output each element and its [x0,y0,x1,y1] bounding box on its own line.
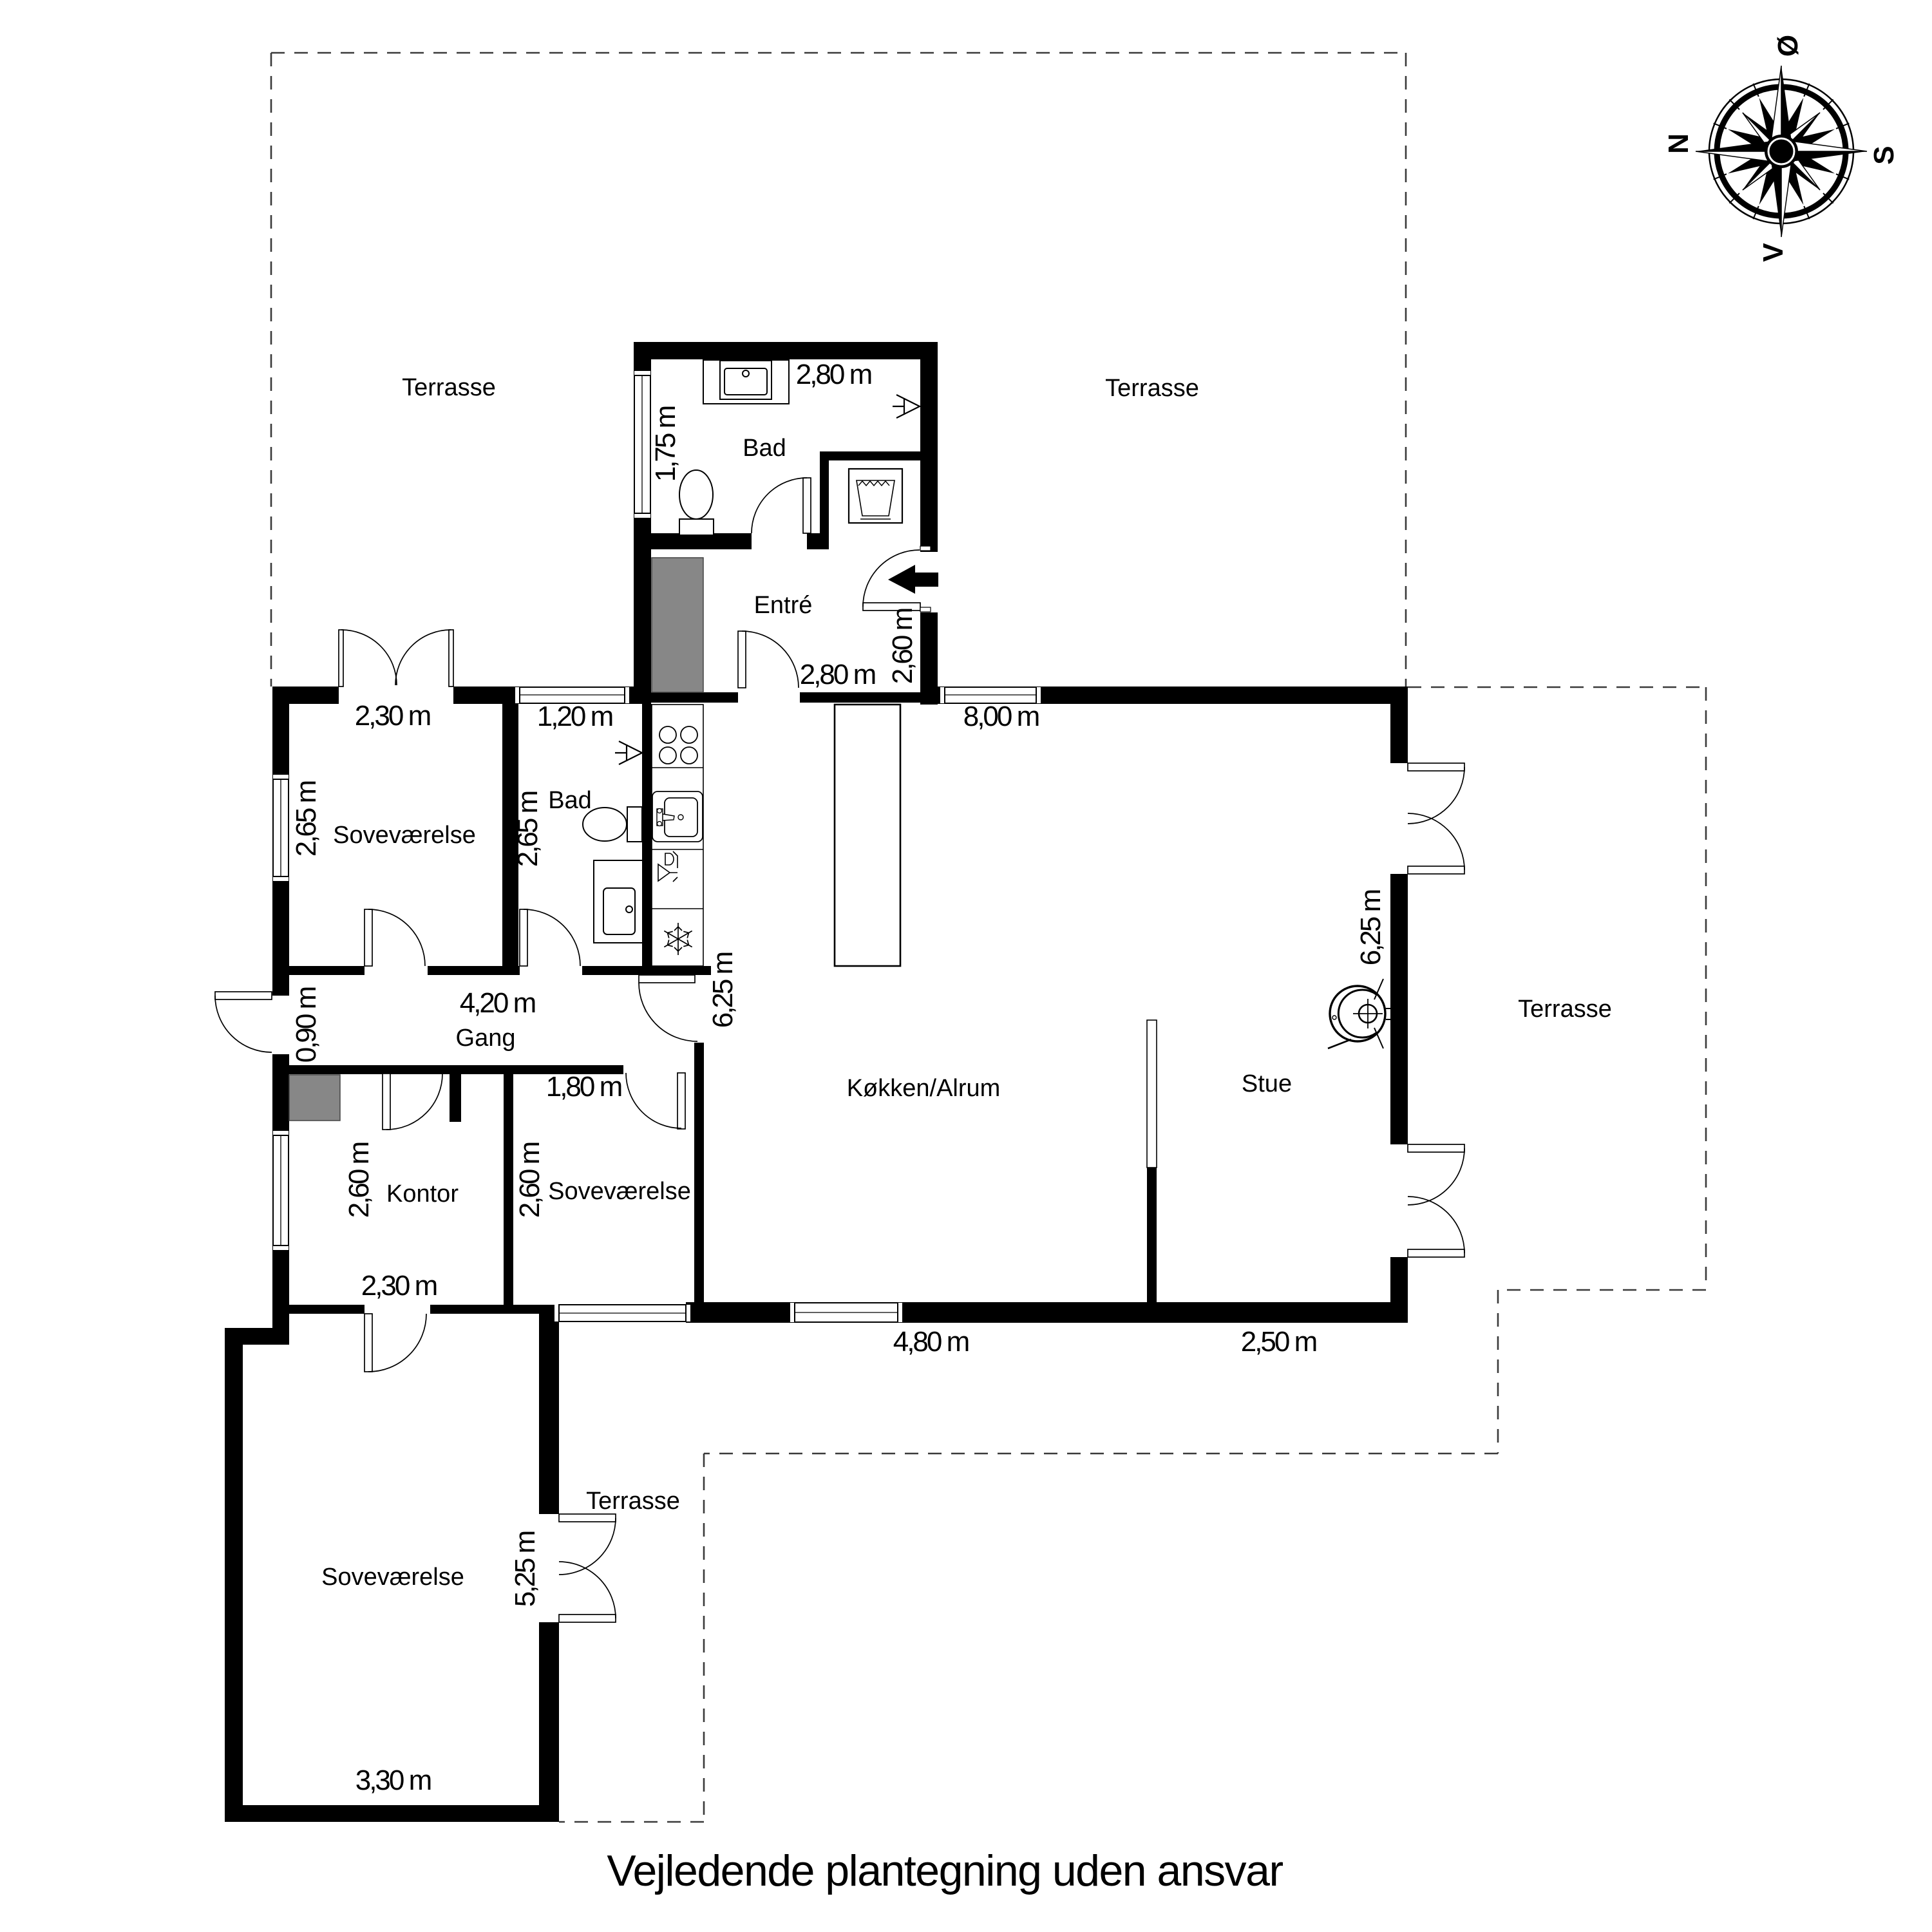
svg-text:Bad: Bad [548,787,592,814]
svg-text:N: N [1663,133,1694,154]
svg-text:S: S [1868,146,1900,164]
svg-text:1,75 m: 1,75 m [650,406,681,482]
svg-text:V: V [1757,243,1789,262]
svg-text:Bad: Bad [743,435,786,462]
svg-text:2,50 m: 2,50 m [1241,1326,1316,1358]
svg-text:6,25 m: 6,25 m [707,952,739,1028]
svg-text:Ø: Ø [1772,35,1804,57]
svg-text:Soveværelse: Soveværelse [333,822,476,849]
svg-text:Køkken/Alrum: Køkken/Alrum [847,1075,1001,1102]
svg-text:0,90 m: 0,90 m [290,987,322,1063]
svg-text:Soveværelse: Soveværelse [321,1564,464,1591]
svg-text:Vejledende plantegning uden an: Vejledende plantegning uden ansvar [607,1846,1283,1895]
svg-text:2,80 m: 2,80 m [800,659,875,690]
svg-text:3,30 m: 3,30 m [355,1765,431,1796]
svg-text:4,80 m: 4,80 m [893,1326,969,1358]
svg-text:5,25 m: 5,25 m [509,1531,541,1607]
svg-text:Terrasse: Terrasse [586,1488,680,1515]
svg-text:1,20 m: 1,20 m [537,701,612,732]
svg-text:Terrasse: Terrasse [1105,375,1199,402]
svg-text:Terrasse: Terrasse [1518,996,1612,1023]
svg-text:2,65 m: 2,65 m [290,781,322,857]
svg-text:8,00 m: 8,00 m [963,701,1039,732]
svg-text:FONET: FONET [1779,141,1785,161]
svg-text:Stue: Stue [1242,1070,1292,1097]
svg-text:2,60 m: 2,60 m [514,1142,545,1218]
svg-text:Terrasse: Terrasse [402,374,496,401]
svg-text:Soveværelse: Soveværelse [548,1178,691,1205]
svg-text:Gang: Gang [456,1025,516,1052]
svg-text:2,30 m: 2,30 m [361,1270,437,1302]
svg-text:Entré: Entré [754,592,813,619]
svg-text:Kontor: Kontor [386,1180,459,1207]
svg-text:2,65 m: 2,65 m [512,791,544,867]
svg-text:6,25 m: 6,25 m [1355,890,1387,965]
svg-text:4,20 m: 4,20 m [460,987,535,1019]
svg-text:1,80 m: 1,80 m [546,1071,621,1103]
svg-text:2,80 m: 2,80 m [796,359,871,390]
svg-text:2,60 m: 2,60 m [343,1142,375,1218]
svg-text:2,60 m: 2,60 m [887,609,918,684]
svg-text:2,30 m: 2,30 m [355,700,430,732]
